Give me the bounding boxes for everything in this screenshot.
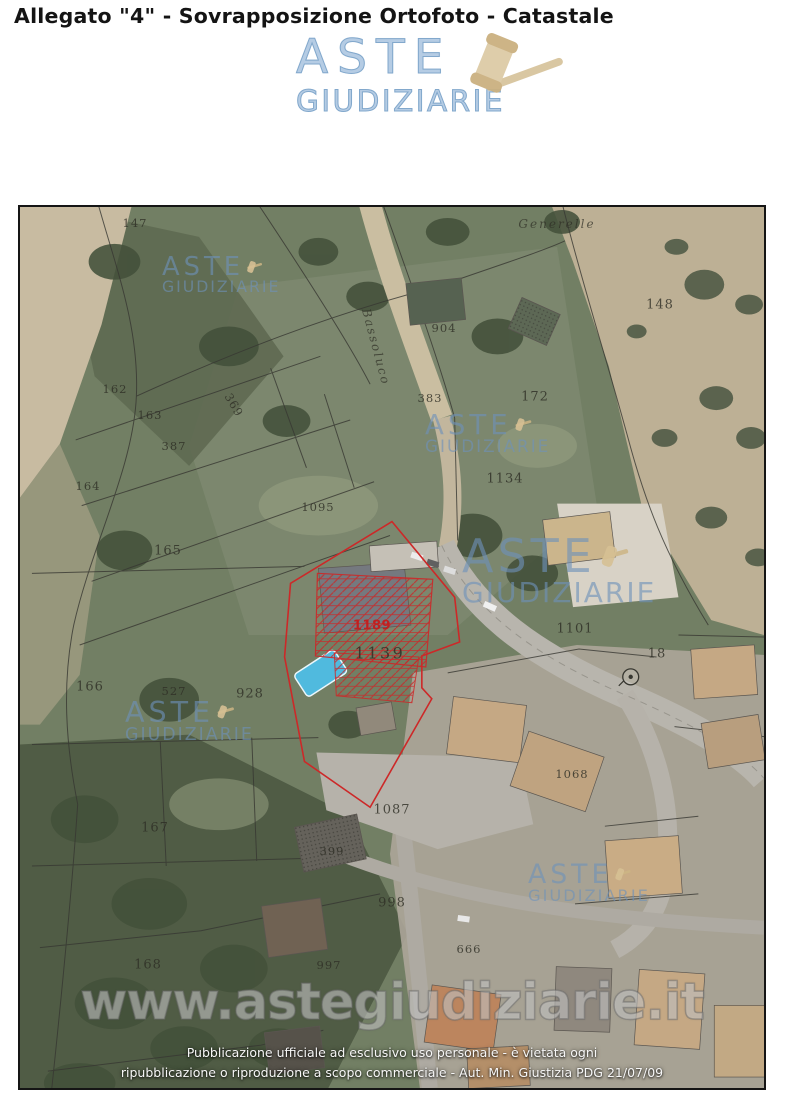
parcel-label-666: 666 [457, 942, 482, 956]
parcel-label-1101: 1101 [556, 622, 593, 637]
parcel-label-18: 18 [648, 647, 667, 662]
parcel-label-148: 148 [646, 298, 674, 313]
legal-footer: Pubblicazione ufficiale ad esclusivo uso… [20, 1043, 764, 1083]
parcel-label-1189: 1189 [353, 619, 391, 634]
parcel-label-163: 163 [138, 408, 163, 422]
parcel-label-387: 387 [162, 439, 187, 453]
parcel-label-165: 165 [154, 544, 182, 559]
parcel-label-167: 167 [141, 821, 169, 836]
parcel-label-166: 166 [76, 680, 104, 695]
parcel-label-997: 997 [317, 958, 342, 972]
website-watermark: www.astegiudiziarie.it [20, 973, 764, 1032]
parcel-label-928: 928 [236, 687, 264, 702]
parcel-label-383: 383 [418, 391, 443, 405]
parcel-label-168: 168 [134, 958, 162, 973]
document-page: Allegato "4" - Sovrapposizione Ortofoto … [0, 0, 800, 1106]
parcel-label-172: 172 [521, 390, 549, 405]
parcel-label-904: 904 [432, 321, 457, 335]
parcel-label-1095: 1095 [301, 500, 334, 514]
parcel-label-162: 162 [103, 382, 128, 396]
ortofoto-map: 147Generelle148904Bassoluco1621633693831… [18, 205, 766, 1090]
parcel-label-527: 527 [162, 684, 187, 698]
parcel-label-1134: 1134 [486, 472, 523, 487]
gavel-icon [442, 24, 570, 116]
parcel-label-998: 998 [378, 896, 406, 911]
parcel-label-164: 164 [76, 479, 101, 493]
aste-giudiziarie-logo: ASTE GIUDIZIARIE [296, 34, 576, 124]
parcel-label-147: 147 [123, 216, 148, 230]
footer-line-1: Pubblicazione ufficiale ad esclusivo uso… [20, 1043, 764, 1063]
footer-line-2: ripubblicazione o riproduzione a scopo c… [20, 1063, 764, 1083]
parcel-label-1139: 1139 [355, 644, 406, 663]
parcel-label-399: 399 [320, 844, 345, 858]
parcel-label-1087: 1087 [373, 803, 410, 818]
parcel-label-generelle: Generelle [518, 217, 595, 231]
parcel-label-1068: 1068 [555, 767, 588, 781]
